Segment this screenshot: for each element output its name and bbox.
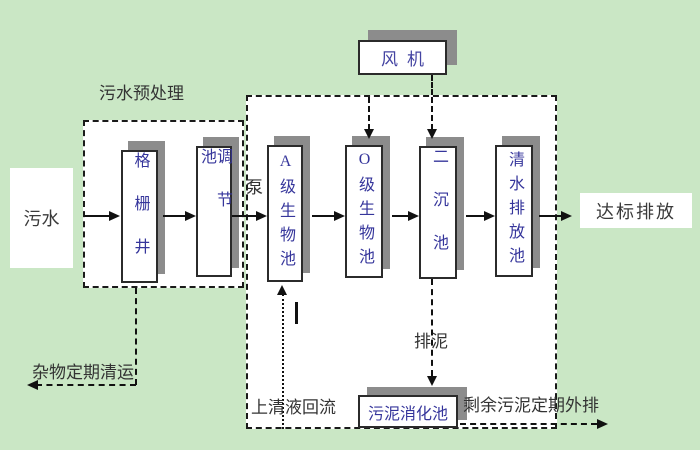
flow-arrowhead-regulating-a [256, 211, 267, 221]
excess-sludge-label: 剩余污泥定期外排 [463, 397, 599, 416]
flow-line-gridwell-regulating [163, 215, 185, 217]
tank-secondary-clarifier: 二沉池 [419, 146, 457, 279]
air-line-clarifier [431, 97, 433, 130]
debris-removal-label: 杂物定期清运 [32, 364, 134, 383]
wastewater-process-flow-diagram: 污水预处理 污水 达标排放 风机 格栅井 调节池 A级生物池 O级生物池 二沉池… [0, 0, 700, 450]
pump-label: 泵 [246, 179, 263, 198]
tank-grid-well: 格栅井 [121, 150, 158, 283]
air-arrowhead-clarifier [427, 129, 437, 139]
excess-sludge-line [460, 423, 597, 425]
stray-tick-mark [295, 302, 298, 324]
flow-arrowhead-influent [109, 211, 120, 221]
tank-o-biological: O级生物池 [345, 145, 383, 278]
flow-arrowhead-clarifier-cleanwater [484, 211, 495, 221]
sludge-discharge-label: 排泥 [414, 333, 448, 352]
tank-clean-water-discharge-label: 清水排放池 [506, 151, 522, 271]
excess-sludge-arrowhead [597, 419, 608, 429]
tank-regulating-label: 调节池 [198, 148, 230, 275]
digester-box: 污泥消化池 [358, 395, 458, 428]
fan-box: 风机 [358, 40, 447, 75]
flow-arrowhead-effluent [561, 211, 572, 221]
flow-line-clarifier-cleanwater [466, 215, 484, 217]
influent-label: 污水 [24, 205, 60, 231]
flow-arrowhead-gridwell-regulating [185, 211, 196, 221]
flow-line-effluent [539, 215, 561, 217]
debris-line-vertical [135, 288, 137, 385]
tank-regulating: 调节池 [196, 146, 232, 277]
flow-arrowhead-o-clarifier [408, 211, 419, 221]
tank-grid-well-label: 格栅井 [132, 152, 148, 281]
flow-arrowhead-a-o [334, 211, 345, 221]
tank-a-biological-label: A级生物池 [277, 153, 293, 274]
flow-line-influent [84, 215, 109, 217]
flow-line-o-clarifier [392, 215, 408, 217]
fan-label: 风机 [372, 45, 433, 70]
supernatant-return-arrowhead [277, 285, 287, 295]
tank-a-biological: A级生物池 [267, 145, 303, 282]
flow-line-a-o [312, 215, 334, 217]
sludge-discharge-line [431, 279, 433, 376]
tank-clean-water-discharge: 清水排放池 [495, 145, 533, 277]
supernatant-return-label: 上清液回流 [251, 399, 336, 418]
influent-box: 污水 [10, 168, 73, 268]
pretreatment-group-label: 污水预处理 [99, 85, 184, 104]
flow-line-regulating-a [232, 215, 256, 217]
sludge-discharge-arrowhead [427, 376, 437, 386]
tank-o-biological-label: O级生物池 [356, 151, 372, 272]
debris-line-horizontal [36, 384, 136, 386]
digester-label: 污泥消化池 [368, 400, 448, 424]
air-line-o-tank [368, 97, 370, 130]
effluent-label: 达标排放 [596, 198, 676, 224]
air-arrowhead-o-tank [364, 129, 374, 139]
tank-secondary-clarifier-label: 二沉池 [430, 148, 446, 277]
effluent-box: 达标排放 [580, 193, 692, 228]
fan-connector-line [431, 75, 433, 95]
